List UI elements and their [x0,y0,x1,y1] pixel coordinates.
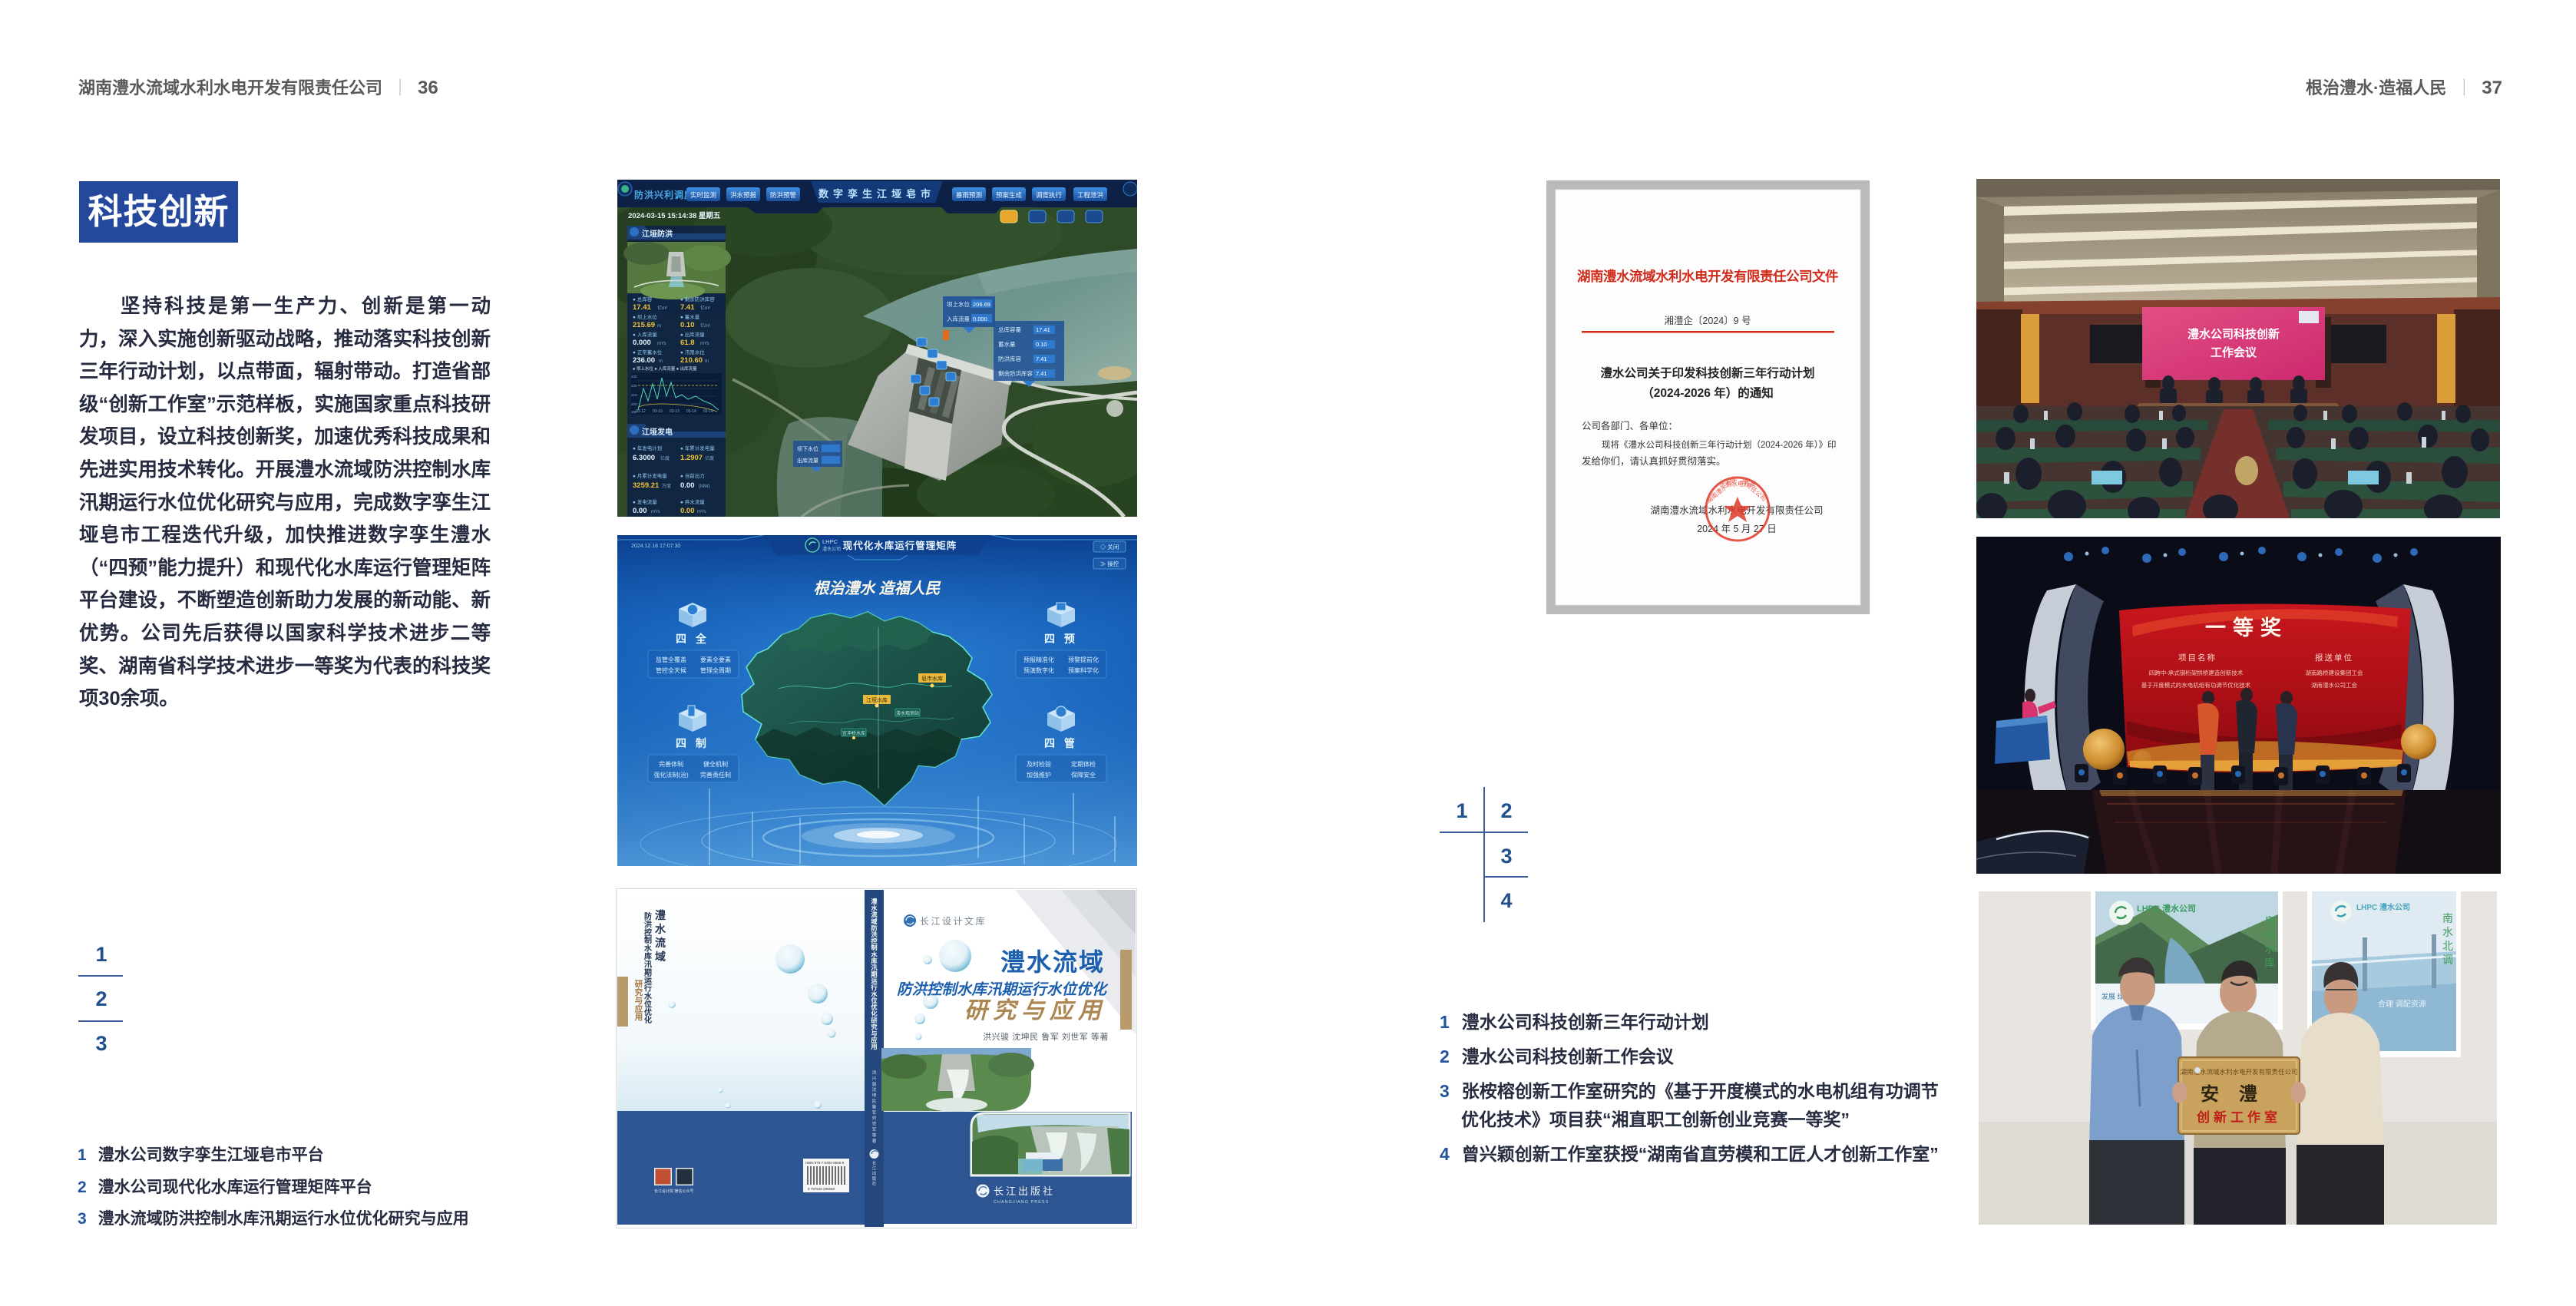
svg-text:预案科学化: 预案科学化 [1068,666,1099,674]
svg-text:236.00: 236.00 [633,356,655,365]
svg-text:出库流量: 出库流量 [797,457,818,464]
svg-text:● 出库流量: ● 出库流量 [680,331,705,338]
svg-text:7.41: 7.41 [1036,370,1047,377]
svg-text:7.41: 7.41 [1036,355,1047,362]
svg-text:LHPC 澧水公司: LHPC 澧水公司 [2356,902,2410,912]
svg-text:预演数字化: 预演数字化 [1023,666,1054,674]
svg-text:6.3000: 6.3000 [633,454,655,462]
svg-text:防洪控制水库汛期运行水位优化: 防洪控制水库汛期运行水位优化 [643,911,653,1025]
svg-text:0.00: 0.00 [680,481,695,490]
svg-text:3259.21: 3259.21 [633,481,660,490]
svg-text:健全机制: 健全机制 [703,760,728,768]
svg-text:● 蓄水量: ● 蓄水量 [680,313,700,320]
svg-text:m: m [705,359,709,364]
svg-text:创新工作室: 创新工作室 [2196,1109,2281,1125]
svg-text:四 管: 四 管 [1044,737,1078,749]
svg-text:湖南路桥建设集团工会: 湖南路桥建设集团工会 [2306,669,2363,676]
svg-text:ISBN 978-7-5492-9565-8: ISBN 978-7-5492-9565-8 [805,1161,845,1165]
svg-text:0.10: 0.10 [680,321,695,329]
svg-text:湖南澧水公司工会: 湖南澧水公司工会 [2311,681,2357,689]
svg-text:17.41: 17.41 [1036,326,1050,333]
svg-text:项目名称: 项目名称 [2178,653,2217,663]
svg-text:现代化水库运行管理矩阵: 现代化水库运行管理矩阵 [843,540,957,551]
svg-text:亿度: 亿度 [705,455,714,461]
svg-text:澧水公司: 澧水公司 [822,546,841,552]
svg-text:17.41: 17.41 [633,303,651,312]
svg-text:0.00: 0.00 [633,507,647,515]
svg-text:● 坝上水位: ● 坝上水位 [633,313,657,320]
svg-text:210.60: 210.60 [680,356,703,365]
svg-text:合理 调配资源: 合理 调配资源 [2378,999,2426,1009]
svg-text:LHPC 澧水公司: LHPC 澧水公司 [2137,903,2196,914]
svg-text:03-14: 03-14 [686,409,696,414]
svg-text:m: m [657,324,661,329]
svg-text:数字孪生江垭皂市: 数字孪生江垭皂市 [818,188,935,200]
svg-text:实时监测: 实时监测 [690,191,716,199]
svg-text:● 入库流量: ● 入库流量 [633,331,657,338]
svg-text:● 发电流量: ● 发电流量 [633,498,657,505]
svg-text:水利水电开发: 水利水电开发 [1719,480,1756,488]
svg-text:● 总库容: ● 总库容 [633,296,653,303]
svg-text:m³/s: m³/s [651,510,660,514]
svg-text:预案生成: 预案生成 [996,191,1023,199]
svg-text:206.69: 206.69 [973,301,990,308]
svg-text:管控全天候: 管控全天候 [656,666,686,674]
svg-text:江垭水库: 江垭水库 [866,696,888,703]
svg-text:蓄水量: 蓄水量 [998,340,1016,348]
svg-text:安澧: 安澧 [2201,1083,2277,1105]
svg-text:03-13: 03-13 [670,409,680,414]
svg-text:公司各部门、各单位：: 公司各部门、各单位： [1582,420,1678,431]
svg-text:长江设计院 微信公众号: 长江设计院 微信公众号 [654,1189,693,1194]
svg-text:发给你们，请认真抓好贯彻落实。: 发给你们，请认真抓好贯彻落实。 [1582,455,1726,467]
svg-text:基于开度模式的水电机组有功调节优化技术: 基于开度模式的水电机组有功调节优化技术 [2141,681,2251,689]
svg-text:LHPC: LHPC [822,538,838,545]
svg-text:预警提前化: 预警提前化 [1068,656,1099,663]
svg-text:入库流量: 入库流量 [947,315,970,322]
svg-text:9 787549 295658: 9 787549 295658 [808,1187,835,1191]
svg-text:江垭防洪: 江垭防洪 [642,229,673,239]
svg-text:工程泄洪: 工程泄洪 [1077,191,1104,199]
svg-text:洪水预报: 洪水预报 [730,191,757,199]
svg-text:四 全: 四 全 [676,633,709,645]
svg-text:长江设计文库: 长江设计文库 [920,915,987,927]
svg-text:● 年累计发电量: ● 年累计发电量 [680,445,715,451]
svg-text:长江出版社: 长江出版社 [872,1160,877,1186]
svg-text:坝下水位: 坝下水位 [797,445,818,452]
svg-text:≫ 操控: ≫ 操控 [1100,560,1119,567]
svg-text:万度: 万度 [662,483,671,489]
svg-text:完善责任制: 完善责任制 [700,771,731,779]
svg-text:宜冲桥水库: 宜冲桥水库 [842,730,865,736]
svg-text:亿m³: 亿m³ [700,305,710,311]
svg-text:230: 230 [631,375,637,379]
svg-text:长江出版社: 长江出版社 [994,1185,1055,1197]
svg-text:澧水公司关于印发科技创新三年行动计划: 澧水公司关于印发科技创新三年行动计划 [1600,365,1814,380]
svg-text:● 当前出力: ● 当前出力 [680,472,705,479]
svg-text:现将《澧水公司科技创新三年行动计划（2024-2026 年）: 现将《澧水公司科技创新三年行动计划（2024-2026 年）》印 [1602,439,1836,450]
svg-text:剩余防洪库容: 剩余防洪库容 [998,369,1033,377]
svg-text:7.41: 7.41 [680,303,695,312]
svg-text:四 制: 四 制 [676,737,709,749]
svg-text:m³/s: m³/s [657,342,666,346]
svg-text:亿度: 亿度 [660,455,670,461]
svg-text:暴雨预测: 暴雨预测 [956,191,982,199]
svg-text:湘澧企〔2024〕9 号: 湘澧企〔2024〕9 号 [1664,315,1751,326]
svg-text:● 剩余防洪库容: ● 剩余防洪库容 [680,296,715,303]
svg-text:四跨中-承式钢桁架拱桥建造创新技术: 四跨中-承式钢桁架拱桥建造创新技术 [2149,669,2244,676]
svg-text:调度执行: 调度执行 [1036,191,1063,199]
svg-text:澧水流域: 澧水流域 [1000,948,1105,976]
svg-text:江垭发电: 江垭发电 [642,427,673,437]
svg-text:一等奖: 一等奖 [2205,616,2288,640]
svg-text:0.000: 0.000 [633,339,651,347]
svg-text:0.000: 0.000 [973,316,987,322]
svg-text:03-14: 03-14 [703,409,713,414]
svg-text:1.2907: 1.2907 [680,454,703,462]
svg-text:● 年发电计划: ● 年发电计划 [633,445,662,451]
svg-text:200: 200 [631,402,637,406]
svg-text:2024.12.18 17:07:30: 2024.12.18 17:07:30 [631,544,680,549]
svg-text:亿m³: 亿m³ [657,305,667,311]
svg-text:◇ 关闭: ◇ 关闭 [1100,543,1119,551]
svg-text:防洪库容: 防洪库容 [998,355,1021,362]
svg-text:220: 220 [631,384,637,388]
svg-text:● 坝上水位 ● 入库流量 ● 出库流量: ● 坝上水位 ● 入库流量 ● 出库流量 [633,365,697,372]
svg-text:CHANGJIANG PRESS: CHANGJIANG PRESS [994,1200,1049,1205]
svg-text:215.69: 215.69 [633,321,655,329]
svg-text:防洪兴利调度: 防洪兴利调度 [634,189,694,200]
svg-text:溇水观测站: 溇水观测站 [896,710,919,716]
svg-text:洪兴骏 沈坤民 鲁军 刘世军 等著: 洪兴骏 沈坤民 鲁军 刘世军 等著 [983,1031,1109,1042]
svg-text:加强维护: 加强维护 [1027,771,1051,779]
svg-text:0.10: 0.10 [1036,341,1047,348]
svg-text:(MW): (MW) [699,484,710,489]
svg-text:管理全周期: 管理全周期 [700,666,731,674]
svg-text:监管全覆盖: 监管全覆盖 [656,656,686,663]
svg-text:要素全要素: 要素全要素 [700,656,731,663]
svg-text:湖南澧水流域水利水电开发有限责任公司文件: 湖南澧水流域水利水电开发有限责任公司文件 [1577,269,1839,284]
svg-text:完善体制: 完善体制 [659,760,683,768]
svg-text:210: 210 [631,393,637,397]
svg-text:总库容量: 总库容量 [998,326,1021,333]
svg-text:预报精准化: 预报精准化 [1023,656,1054,663]
svg-text:澧水公司科技创新: 澧水公司科技创新 [2187,327,2280,341]
svg-text:m: m [659,359,663,364]
svg-text:亿m³: 亿m³ [700,322,710,329]
svg-text:● 弃水流量: ● 弃水流量 [680,498,705,505]
svg-text:● 正常蓄水位: ● 正常蓄水位 [633,349,663,355]
svg-text:m³/s: m³/s [697,510,706,514]
svg-text:报送单位: 报送单位 [2315,653,2353,663]
svg-text:61.8: 61.8 [680,339,695,347]
svg-text:定期体检: 定期体检 [1071,760,1096,768]
svg-text:（2024-2026 年）的通知: （2024-2026 年）的通知 [1642,385,1773,400]
svg-text:及时检验: 及时检验 [1027,760,1051,768]
svg-text:03-12: 03-12 [636,409,646,414]
svg-text:防洪控制水库汛期运行水位优化: 防洪控制水库汛期运行水位优化 [897,981,1109,998]
svg-text:保障安全: 保障安全 [1071,771,1096,779]
svg-text:m³/s: m³/s [700,342,709,346]
svg-text:工作会议: 工作会议 [2211,346,2257,359]
svg-text:03-13: 03-13 [653,409,663,414]
svg-text:0.00: 0.00 [680,507,695,515]
svg-text:皂市水库: 皂市水库 [921,675,943,682]
svg-text:2024-03-15 15:14:38 星期五: 2024-03-15 15:14:38 星期五 [628,211,721,220]
svg-text:坝上水位: 坝上水位 [947,300,970,308]
svg-text:● 汛限水位: ● 汛限水位 [680,349,705,355]
svg-text:根治澧水 造福人民: 根治澧水 造福人民 [814,580,941,597]
svg-text:四 预: 四 预 [1044,633,1078,645]
svg-text:研究与应用: 研究与应用 [634,980,643,1022]
svg-text:防洪预警: 防洪预警 [770,191,797,199]
svg-text:强化法制(治): 强化法制(治) [653,771,689,779]
svg-text:澧水流域防洪控制水库汛期运行水位优化研究与应用: 澧水流域防洪控制水库汛期运行水位优化研究与应用 [870,898,878,1050]
svg-text:● 月累计发电量: ● 月累计发电量 [633,472,667,479]
svg-text:研究与应用: 研究与应用 [964,997,1106,1023]
